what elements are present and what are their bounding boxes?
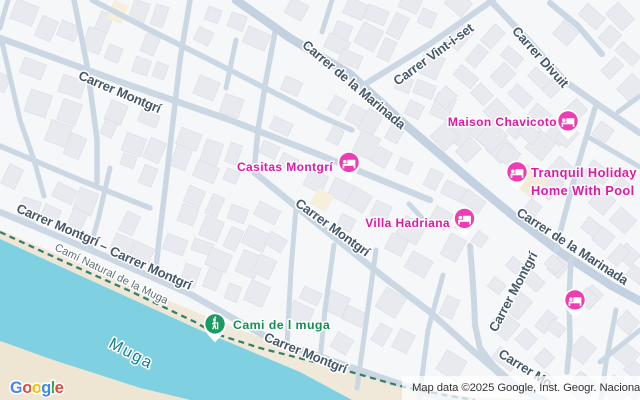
- svg-text:Maison Chavicoto: Maison Chavicoto: [448, 115, 557, 129]
- svg-text:Map data ©2025 Google, Inst. G: Map data ©2025 Google, Inst. Geogr. Naci…: [412, 382, 640, 394]
- svg-text:Home With Pool: Home With Pool: [531, 183, 635, 198]
- svg-text:Cami de l muga: Cami de l muga: [233, 318, 330, 332]
- svg-text:Tranquil Holiday: Tranquil Holiday: [531, 165, 637, 180]
- svg-text:Google: Google: [10, 379, 64, 397]
- svg-text:Villa Hadriana: Villa Hadriana: [365, 216, 450, 230]
- svg-text:Casitas Montgrí: Casitas Montgrí: [237, 160, 333, 174]
